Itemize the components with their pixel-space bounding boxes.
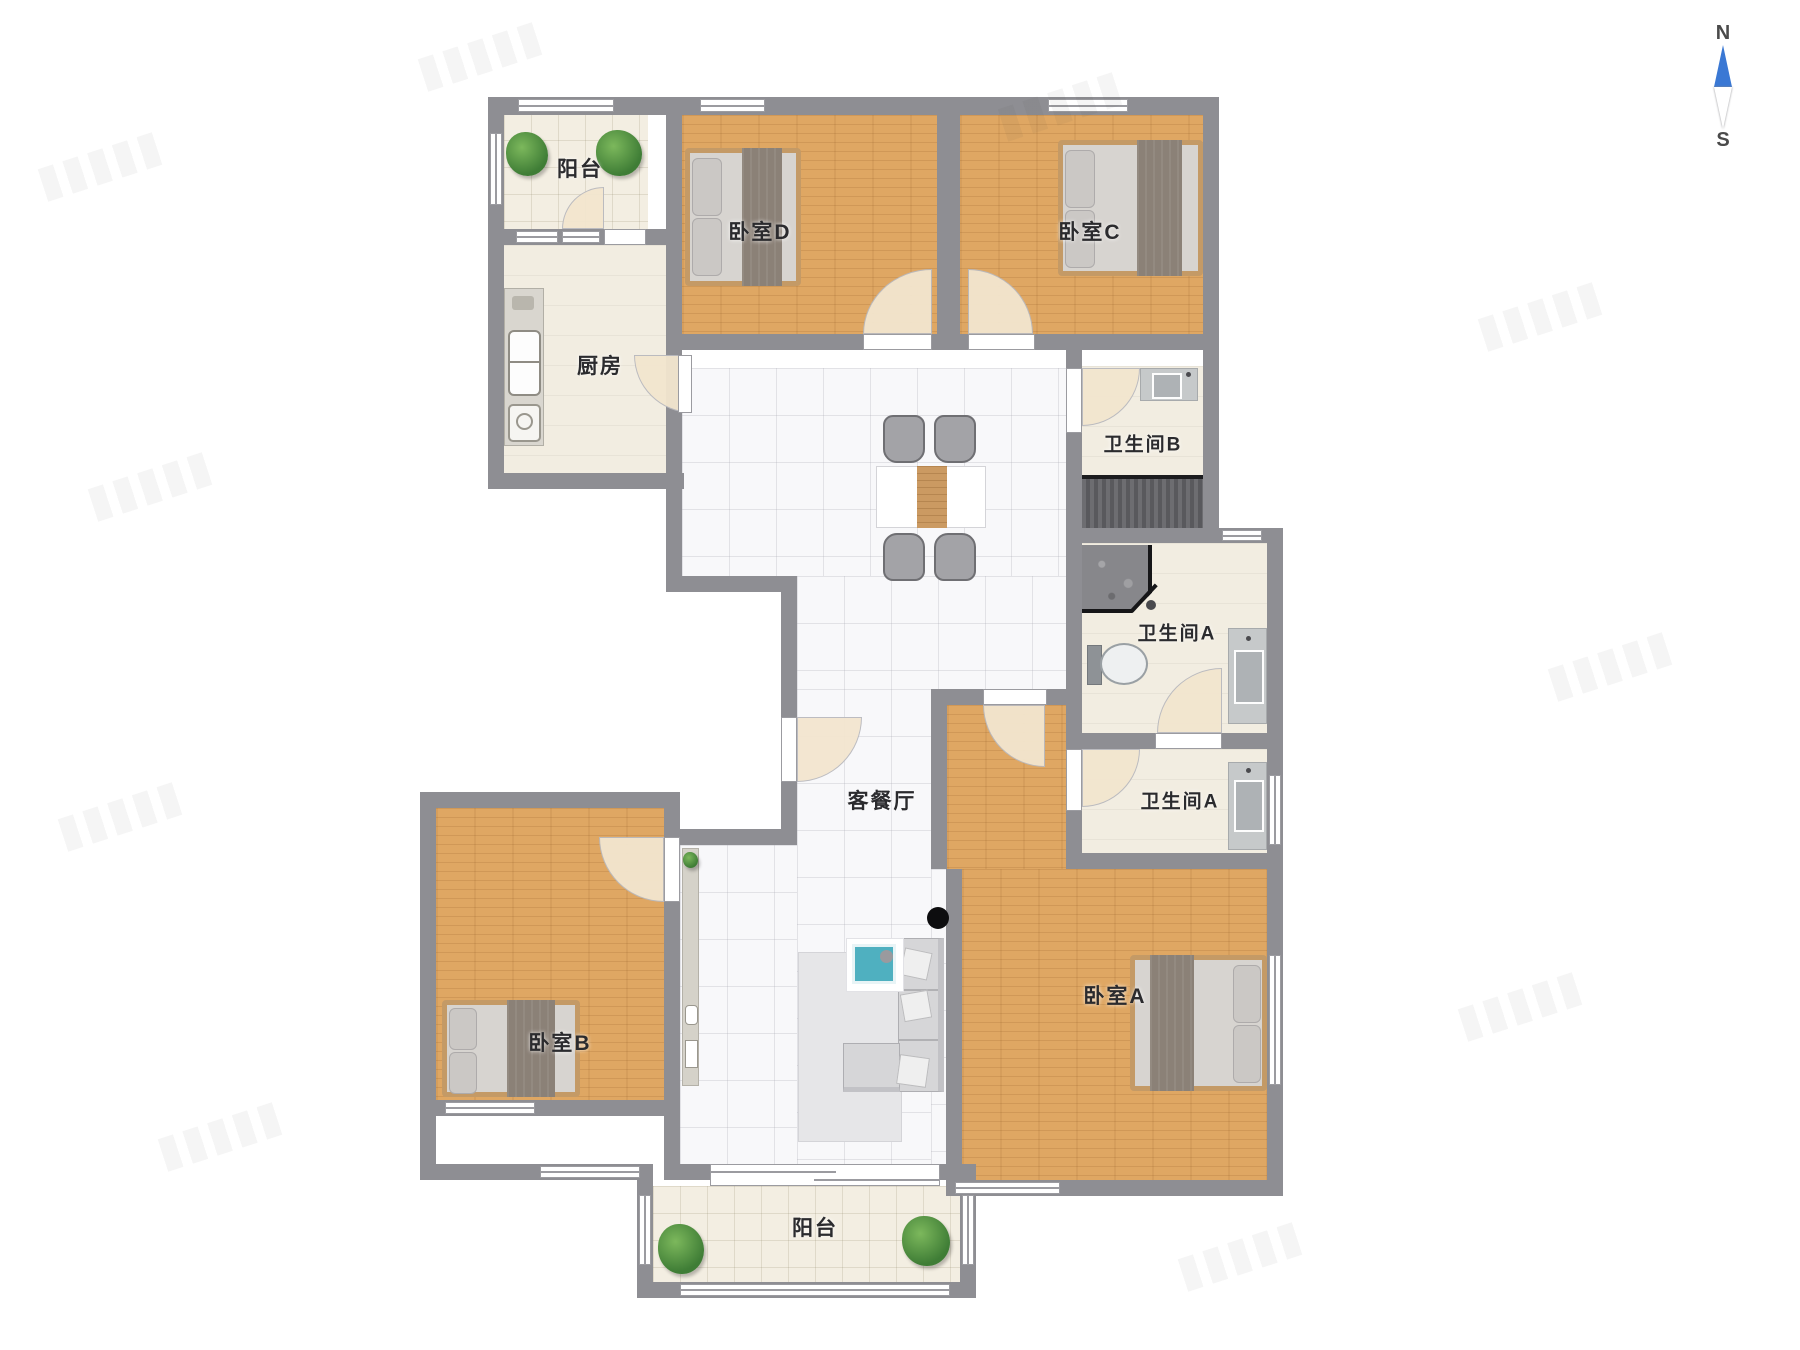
- watermark: [1548, 632, 1673, 701]
- coffee-table-decor: [880, 950, 893, 963]
- label-living-dining: 客餐厅: [848, 785, 917, 815]
- wall-corridor-left: [931, 705, 947, 869]
- dining-chair-4: [934, 533, 976, 581]
- dining-chair-2: [934, 415, 976, 463]
- bathroom-a-upper-sink: [1234, 650, 1264, 704]
- bathroom-b-sink: [1152, 373, 1182, 399]
- bed-c-pillow-1: [1065, 150, 1095, 208]
- window-bedroom-b-bottom: [445, 1102, 535, 1114]
- door-leaf-entry: [781, 717, 797, 782]
- wall-right-top: [1203, 97, 1219, 543]
- kitchen-faucet-icon: [512, 296, 534, 310]
- sliding-door-balcony: [710, 1164, 940, 1186]
- label-bathroom-a-lower: 卫生间A: [1141, 787, 1220, 814]
- bed-b-pillow-1: [449, 1008, 477, 1050]
- label-bathroom-b: 卫生间B: [1104, 430, 1183, 457]
- window-balcony-side-left: [639, 1195, 651, 1265]
- label-bathroom-a-upper: 卫生间A: [1138, 619, 1217, 646]
- compass-south-label: S: [1700, 129, 1746, 152]
- kitchen-cooktop-burner: [516, 413, 533, 430]
- plant-balcony-bottom-left: [658, 1224, 704, 1274]
- window-balcony-kitchen-2: [562, 231, 600, 243]
- tv-console-item-2: [685, 1040, 698, 1068]
- ceiling-light: [927, 907, 949, 929]
- watermark: [158, 1102, 283, 1171]
- door-leaf-bathroom-a-upper: [1155, 733, 1222, 749]
- window-bathroom-a-top: [1222, 530, 1262, 541]
- watermark: [1458, 972, 1583, 1041]
- compass-south-arrow: [1714, 87, 1732, 129]
- bathroom-a-lower-sink: [1234, 780, 1264, 832]
- window-bedroom-d: [700, 99, 765, 112]
- bed-a-pillow-2: [1233, 1025, 1261, 1083]
- door-leaf-bathroom-b: [1066, 368, 1082, 433]
- door-leaf-kitchen: [678, 355, 692, 413]
- window-balcony-top-left: [490, 133, 502, 205]
- sofa-pillow-2: [900, 990, 932, 1022]
- dining-table-runner: [917, 466, 947, 528]
- door-leaf-bedroom-a: [983, 689, 1047, 705]
- wall-bedrooms-bottom: [666, 334, 1219, 350]
- bathroom-a-upper-faucet: [1246, 636, 1251, 641]
- window-balcony-kitchen-1: [516, 231, 558, 243]
- label-balcony-bottom: 阳台: [792, 1212, 838, 1242]
- label-bedroom-a: 卧室A: [1083, 980, 1146, 1010]
- window-bedroom-a-right: [1269, 955, 1281, 1085]
- dining-chair-1: [883, 415, 925, 463]
- window-balcony-top: [518, 99, 614, 112]
- wall-bedroom-b-left: [420, 792, 436, 1116]
- sofa-pillow-3: [896, 1054, 930, 1088]
- label-bedroom-b: 卧室B: [528, 1027, 591, 1057]
- door-leaf-bedroom-c: [968, 334, 1035, 350]
- sofa-pillow-1: [899, 947, 932, 980]
- bed-d-pillow-2: [692, 218, 722, 276]
- living-floor-mid: [797, 576, 1066, 689]
- floor-plan: 阳台 厨房 卧室D 卧室C 卫生间B 卫生间A 卫生间A 客餐厅 卧室B 卧室A…: [0, 0, 1800, 1350]
- window-bedroom-a-bottom: [955, 1182, 1060, 1194]
- wall-living-step: [666, 576, 797, 592]
- window-bottom-left: [540, 1166, 640, 1178]
- plant-balcony-top-left: [506, 132, 548, 176]
- label-balcony-top: 阳台: [557, 153, 603, 183]
- compass-north-label: N: [1700, 22, 1746, 45]
- label-bedroom-d: 卧室D: [728, 216, 791, 246]
- kitchen-sink-divider: [510, 361, 539, 363]
- living-floor-dining: [682, 368, 1066, 576]
- plant-balcony-bottom-right: [902, 1216, 950, 1266]
- compass-north-arrow: [1714, 45, 1732, 87]
- bed-c-blanket: [1137, 140, 1182, 276]
- label-bedroom-c: 卧室C: [1058, 216, 1121, 246]
- dining-chair-3: [883, 533, 925, 581]
- watermark: [88, 452, 213, 521]
- kitchen-sink: [508, 330, 541, 396]
- window-balcony-side-right: [962, 1195, 974, 1265]
- bathroom-a-upper-shower-knob: [1146, 600, 1156, 610]
- window-balcony-bottom: [680, 1284, 950, 1296]
- bed-b-pillow-2: [449, 1052, 477, 1094]
- bathroom-a-upper-toilet-bowl: [1100, 643, 1148, 685]
- bathroom-b-faucet: [1186, 372, 1191, 377]
- bathroom-b-shower-floor: [1082, 475, 1203, 532]
- wall-bedroom-b-top: [420, 792, 680, 808]
- watermark: [418, 22, 543, 91]
- bathroom-a-lower-faucet: [1246, 768, 1251, 773]
- door-leaf-bedroom-d: [863, 334, 932, 350]
- sofa-chaise: [843, 1043, 900, 1092]
- tv-console-item-1: [685, 1005, 698, 1025]
- bed-a-blanket: [1150, 955, 1194, 1091]
- wall-kitchen-bottom: [488, 473, 684, 489]
- watermark: [38, 132, 163, 201]
- bed-a-pillow-1: [1233, 965, 1261, 1023]
- watermark: [1178, 1222, 1303, 1291]
- compass-icon: N S: [1700, 22, 1746, 152]
- door-leaf-balcony-top: [604, 229, 646, 245]
- watermark: [58, 782, 183, 851]
- wall-bedroom-d-c-divider: [937, 115, 960, 350]
- wall-living-corner: [680, 829, 797, 845]
- window-bathroom-a-right: [1269, 775, 1281, 845]
- plant-tv-console: [683, 852, 698, 868]
- bed-d-pillow-1: [692, 158, 722, 216]
- label-kitchen: 厨房: [577, 350, 623, 380]
- door-leaf-bedroom-b: [664, 837, 680, 902]
- wall-bathroom-a-bottom: [1066, 853, 1283, 869]
- door-leaf-bathroom-a-lower: [1066, 749, 1082, 811]
- wall-kitchen-right: [666, 115, 682, 592]
- watermark: [1478, 282, 1603, 351]
